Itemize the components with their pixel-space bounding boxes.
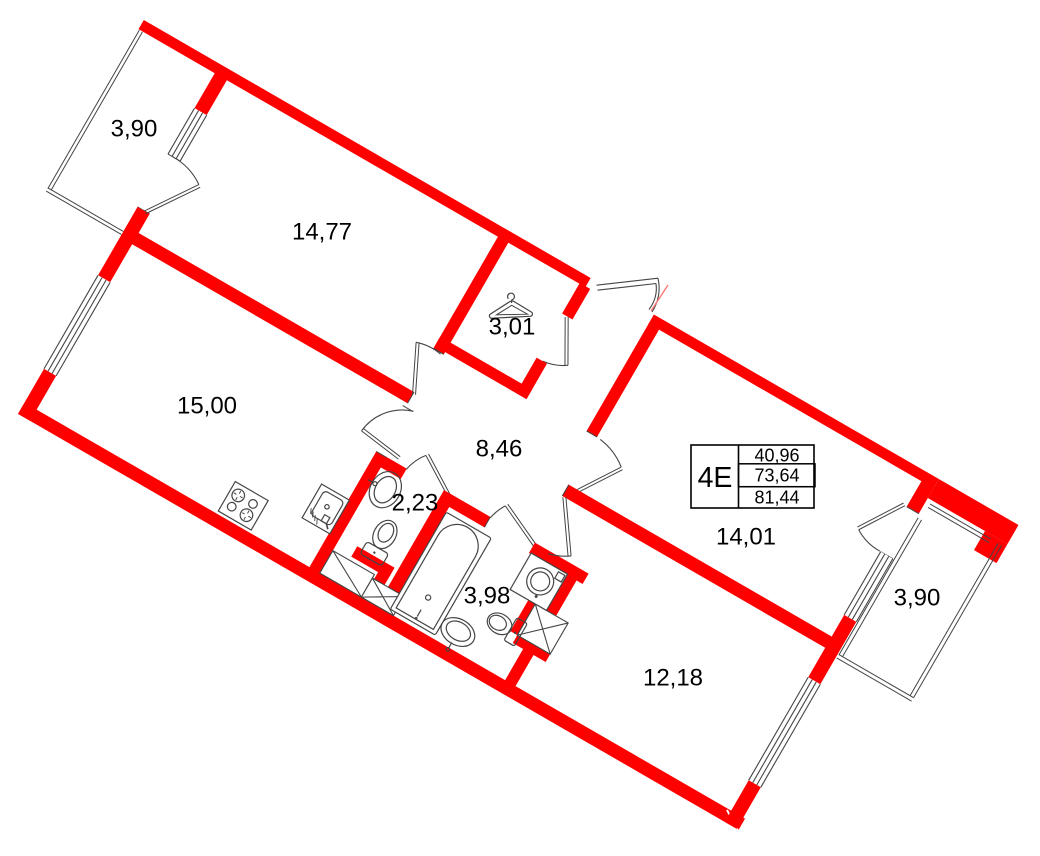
svg-text:8,46: 8,46 bbox=[476, 436, 523, 463]
svg-text:3,01: 3,01 bbox=[489, 314, 536, 341]
svg-text:15,00: 15,00 bbox=[177, 393, 237, 420]
svg-text:14,77: 14,77 bbox=[292, 219, 352, 246]
svg-text:73,64: 73,64 bbox=[754, 466, 799, 486]
svg-text:12,18: 12,18 bbox=[643, 665, 703, 692]
svg-text:3,98: 3,98 bbox=[464, 583, 511, 610]
svg-text:4Е: 4Е bbox=[698, 462, 733, 494]
svg-text:14,01: 14,01 bbox=[716, 524, 776, 551]
svg-text:40,96: 40,96 bbox=[754, 446, 799, 466]
svg-text:81,44: 81,44 bbox=[754, 488, 799, 508]
svg-text:3,90: 3,90 bbox=[111, 116, 158, 143]
svg-text:3,90: 3,90 bbox=[894, 585, 941, 612]
svg-text:2,23: 2,23 bbox=[392, 490, 439, 517]
